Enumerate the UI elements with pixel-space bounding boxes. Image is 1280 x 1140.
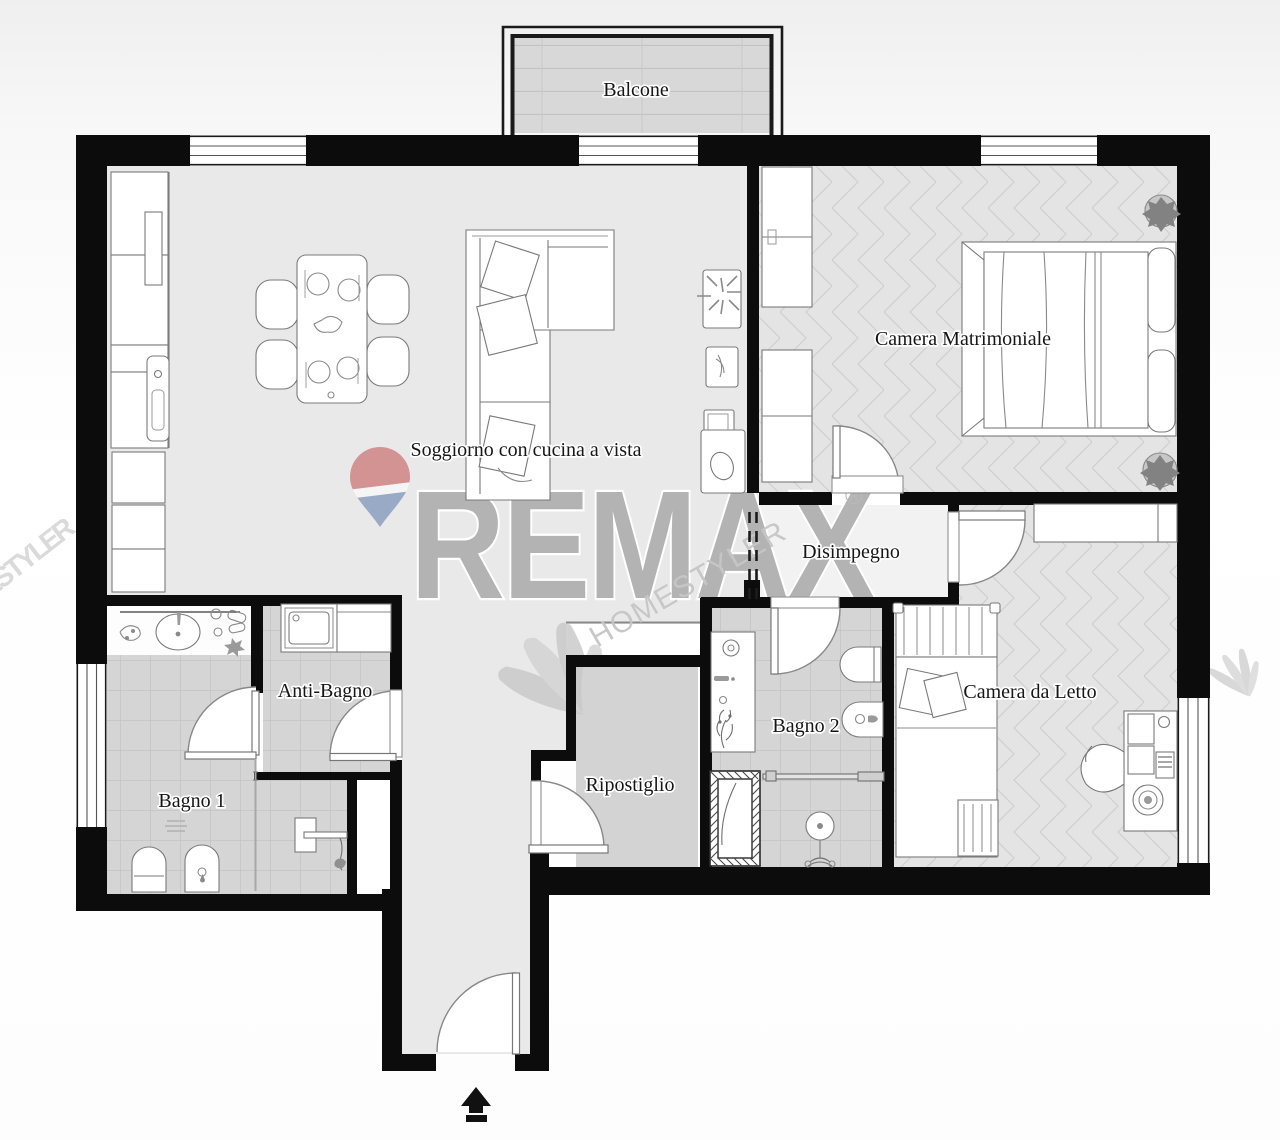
svg-text:Bagno 1: Bagno 1 <box>158 790 225 812</box>
svg-text:Camera da Letto: Camera da Letto <box>963 681 1096 703</box>
svg-text:Ripostiglio: Ripostiglio <box>586 774 675 796</box>
svg-text:Bagno 2: Bagno 2 <box>772 715 839 737</box>
svg-text:Balcone: Balcone <box>603 79 669 101</box>
svg-text:Camera Matrimoniale: Camera Matrimoniale <box>875 328 1051 350</box>
svg-text:Anti-Bagno: Anti-Bagno <box>278 680 372 702</box>
svg-text:Disimpegno: Disimpegno <box>802 541 900 563</box>
svg-text:Soggiorno con cucina a vista: Soggiorno con cucina a vista <box>410 439 641 461</box>
